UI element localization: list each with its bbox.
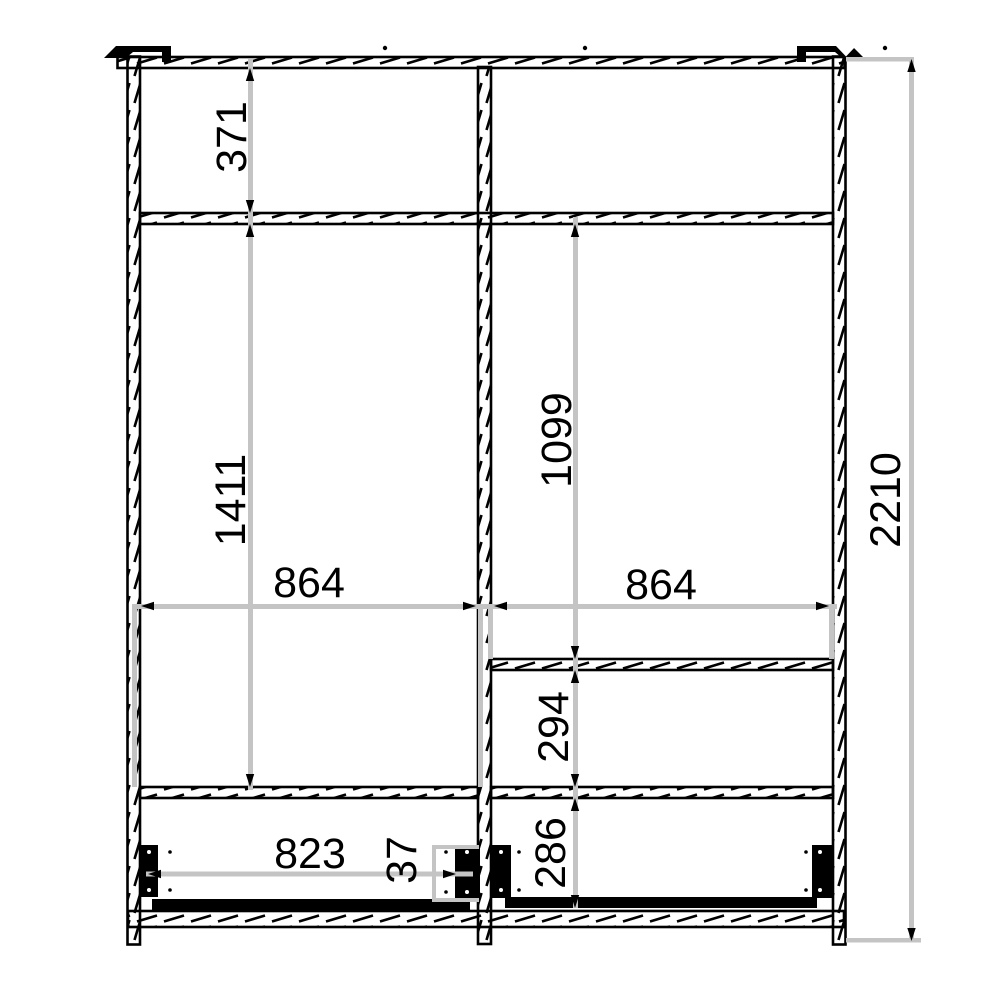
extension-line-left [132, 604, 137, 787]
dimension-bracket-37-bottom [432, 898, 479, 902]
reference-dot [583, 46, 587, 50]
fitting-dot [499, 850, 503, 854]
center-divider-panel [478, 67, 491, 944]
fitting-dot [499, 888, 503, 892]
fitting-dot [818, 888, 822, 892]
fitting-dot [818, 850, 822, 854]
dimension-label-371: 371 [208, 101, 256, 173]
fitting-dot [147, 850, 151, 854]
reference-dot [383, 46, 387, 50]
dimension-bracket-37-top [432, 845, 479, 849]
fitting-dot [517, 850, 521, 854]
reference-dot [883, 46, 887, 50]
left-bottom-shelf [140, 787, 478, 798]
fitting-dot [465, 850, 469, 854]
right-drawer-right-slide [812, 845, 833, 898]
fitting-dot [804, 888, 808, 892]
fitting-dot [444, 890, 448, 894]
fitting-dot [444, 850, 448, 854]
dimension-connector-2210-top [846, 57, 914, 62]
fitting-dot [517, 888, 521, 892]
dimension-label-864-left: 864 [273, 559, 345, 607]
dimension-bracket-37-vertical [432, 845, 436, 902]
left-drawer-bottom [152, 899, 470, 910]
fitting-dot [804, 850, 808, 854]
dimension-label-37: 37 [378, 836, 426, 884]
dimension-label-823: 823 [274, 830, 346, 878]
extension-line-center-right [488, 604, 493, 659]
dimension-label-1411: 1411 [207, 454, 255, 546]
right-side-panel [833, 57, 846, 945]
dimension-label-1099: 1099 [533, 392, 581, 488]
right-lower-shelf [491, 787, 833, 798]
extension-line-right [829, 604, 834, 659]
left-side-panel [128, 57, 141, 945]
right-middle-shelf [491, 659, 833, 670]
wardrobe-section-drawing: 371 1411 1099 864 864 294 286 823 37 221… [0, 0, 1000, 1000]
fitting-dot [168, 850, 172, 854]
dimension-connector-2210-bottom [846, 938, 921, 943]
right-drawer-bottom [505, 897, 817, 908]
dimension-line-864 [133, 604, 837, 609]
dimension-label-286: 286 [527, 817, 575, 889]
fitting-dot [168, 888, 172, 892]
dimension-label-2210: 2210 [862, 452, 910, 548]
fitting-dot [465, 890, 469, 894]
extension-line-center-left [478, 604, 483, 787]
technical-drawing-canvas: 371 1411 1099 864 864 294 286 823 37 221… [0, 0, 1000, 1000]
dimension-label-294: 294 [530, 691, 578, 763]
fitting-dot [147, 888, 151, 892]
dimension-label-864-right: 864 [625, 561, 697, 609]
